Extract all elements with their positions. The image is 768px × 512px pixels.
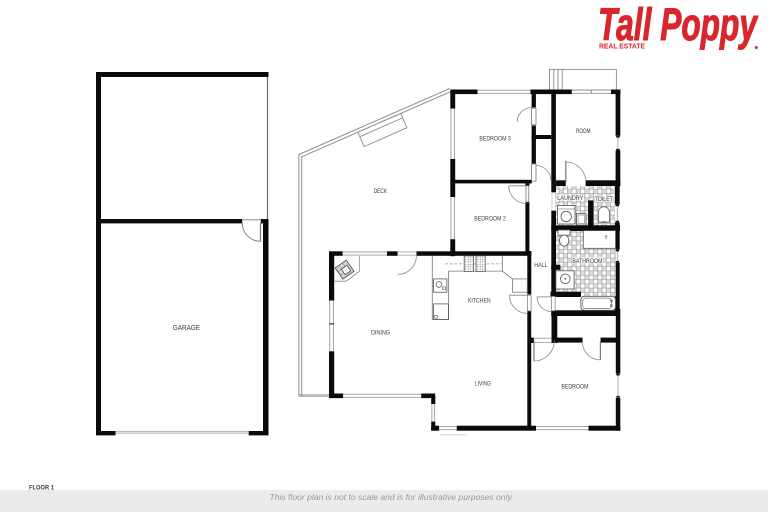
svg-text:HALL: HALL (534, 263, 548, 269)
svg-text:BEDROOM 2: BEDROOM 2 (474, 217, 506, 223)
svg-text:REAL ESTATE: REAL ESTATE (599, 44, 645, 51)
svg-text:GARAGE: GARAGE (173, 323, 200, 332)
svg-text:Tall Poppy: Tall Poppy (598, 0, 758, 50)
svg-text:dn: dn (604, 235, 608, 239)
svg-text:BEDROOM 3: BEDROOM 3 (479, 137, 511, 143)
svg-text:TOILET: TOILET (595, 197, 614, 203)
svg-text:This floor plan is not to scal: This floor plan is not to scale and is f… (270, 493, 514, 502)
svg-text:DECK: DECK (374, 189, 387, 195)
svg-text:KITCHEN: KITCHEN (468, 299, 491, 305)
svg-text:BATHROOM: BATHROOM (572, 259, 602, 265)
svg-text:LAUNDRY: LAUNDRY (557, 196, 583, 202)
svg-text:LIVING: LIVING (475, 382, 491, 388)
svg-text:BEDROOM: BEDROOM (561, 385, 588, 391)
svg-text:DINING: DINING (371, 331, 390, 337)
svg-text:ROOM: ROOM (576, 129, 591, 135)
